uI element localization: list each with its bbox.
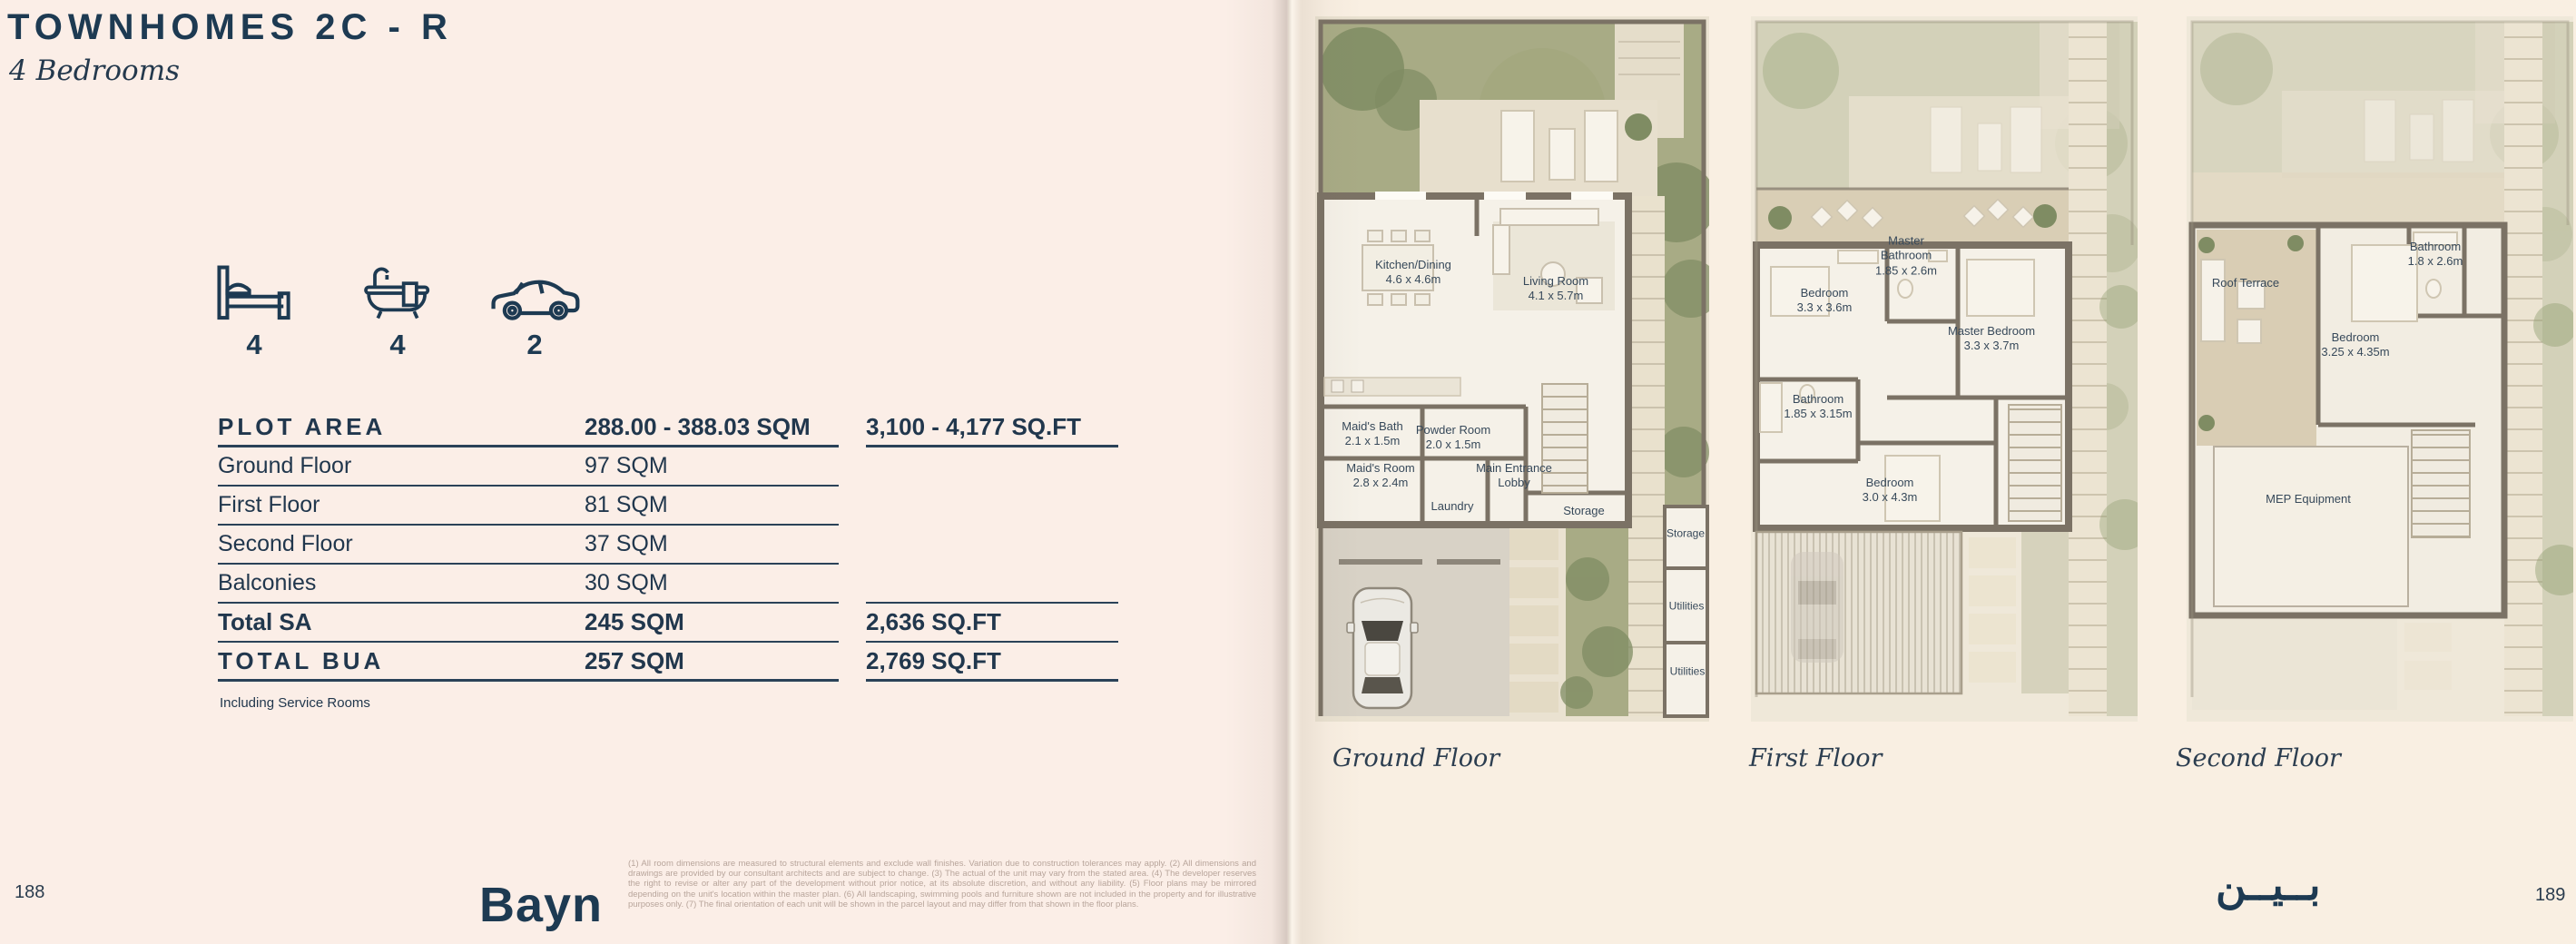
row-label: Second Floor [218, 531, 585, 557]
row-sqm: 257 SQM [585, 647, 684, 675]
stepping-stones [1509, 529, 1558, 713]
row-sqm: 245 SQM [585, 608, 684, 636]
row-sqm: 97 SQM [585, 453, 668, 479]
second-floor-plan: Roof Terrace Bathroom1.8 x 2.6m Bedroom3… [2187, 16, 2573, 722]
plan-caption: Second Floor [2176, 744, 2341, 772]
left-page: TOWNHOMES 2C - R 4 Bedrooms 4 4 [0, 0, 1288, 944]
room-label: Bedroom3.25 x 4.35m [2306, 330, 2405, 360]
row-label: First Floor [218, 492, 585, 518]
row-sqm: 81 SQM [585, 492, 668, 518]
table-row: Second Floor37 SQM [218, 526, 1118, 565]
bedrooms-count: 4 [215, 329, 293, 361]
room-label: Bedroom3.0 x 4.3m [1846, 476, 1933, 506]
first-floor-plan-drawing [1751, 16, 2138, 722]
page-subtitle: 4 Bedrooms [9, 54, 180, 87]
bed-icon [215, 263, 293, 327]
table-row: Balconies30 SQM [218, 565, 1118, 604]
row-sqm: 37 SQM [585, 531, 668, 557]
room-label: MEP Equipment [2249, 492, 2367, 506]
brand-wordmark-arabic: بــيــن [2216, 860, 2321, 910]
room-label: Storage [1540, 504, 1627, 518]
room-label: Storage [1658, 527, 1713, 541]
room-label: Utilities [1660, 665, 1715, 679]
row-label: PLOT AREA [218, 413, 585, 441]
room-label: Master Bedroom3.3 x 3.7m [1932, 324, 2050, 354]
first-floor-plan: Master Bathroom1.85 x 2.6m Bedroom3.3 x … [1751, 16, 2138, 722]
page-number-left: 188 [15, 882, 44, 903]
pergola-carport [1756, 532, 1961, 693]
mep-area [2214, 447, 2408, 606]
brochure-spread: TOWNHOMES 2C - R 4 Bedrooms 4 4 [0, 0, 2576, 944]
side-walkway [2069, 22, 2107, 716]
parking-count: 2 [487, 329, 583, 361]
side-walkway [2504, 22, 2542, 716]
area-table: PLOT AREA288.00 - 388.03 SQM 3,100 - 4,1… [218, 408, 1118, 682]
row-sqm: 288.00 - 388.03 SQM [585, 413, 811, 441]
patio [1420, 100, 1657, 196]
ground-floor-plan-drawing [1315, 16, 1709, 722]
bathtub-icon [361, 260, 434, 327]
room-label: Laundry [1409, 499, 1496, 514]
side-walkway [1628, 196, 1665, 716]
room-label: Bathroom1.85 x 3.15m [1773, 392, 1863, 422]
room-label: Maid's Room2.8 x 2.4m [1340, 461, 1421, 491]
page-number-right: 189 [2535, 885, 2565, 906]
plan-caption: Ground Floor [1332, 744, 1499, 772]
driveway [1321, 525, 1509, 716]
service-rooms-note: Including Service Rooms [220, 695, 370, 711]
row-label: TOTAL BUA [218, 647, 585, 675]
row-sqm: 30 SQM [585, 570, 668, 596]
row-sqft: 3,100 - 4,177 SQ.FT [866, 413, 1081, 441]
row-sqft: 2,636 SQ.FT [866, 608, 1001, 636]
room-label: Roof Terrace [2200, 276, 2291, 290]
table-row: Ground Floor97 SQM [218, 447, 1118, 487]
ground-floor-plan: Kitchen/Dining4.6 x 4.6m Living Room4.1 … [1315, 16, 1709, 722]
room-label: Bathroom1.8 x 2.6m [2394, 240, 2476, 270]
table-row: PLOT AREA288.00 - 388.03 SQM 3,100 - 4,1… [218, 408, 1118, 447]
room-label: Maid's Bath2.1 x 1.5m [1336, 419, 1409, 449]
car-icon [487, 269, 583, 325]
room-label: Bedroom3.3 x 3.6m [1781, 286, 1868, 316]
right-page: Kitchen/Dining4.6 x 4.6m Living Room4.1 … [1288, 0, 2576, 944]
bathrooms-count: 4 [361, 329, 434, 361]
row-label: Balconies [218, 570, 585, 596]
table-row: Total SA245 SQM 2,636 SQ.FT [218, 604, 1118, 643]
table-row: First Floor81 SQM [218, 487, 1118, 526]
staircase [2412, 430, 2470, 537]
room-label: Kitchen/Dining4.6 x 4.6m [1370, 258, 1457, 288]
row-label: Total SA [218, 608, 585, 636]
row-label: Ground Floor [218, 453, 585, 479]
table-row: TOTAL BUA257 SQM 2,769 SQ.FT [218, 643, 1118, 682]
room-label: Master Bathroom1.85 x 2.6m [1870, 234, 1942, 279]
room-label: Living Room4.1 x 5.7m [1512, 274, 1599, 304]
room-label: Utilities [1659, 600, 1714, 614]
legal-disclaimer: (1) All room dimensions are measured to … [628, 859, 1256, 910]
second-floor-plan-drawing [2187, 16, 2573, 722]
row-sqft: 2,769 SQ.FT [866, 647, 1001, 675]
staircase [2009, 405, 2061, 521]
page-title: TOWNHOMES 2C - R [7, 7, 453, 48]
room-label: Main Entrance Lobby [1467, 461, 1561, 491]
car-top-view [1347, 588, 1418, 708]
room-label: Powder Room2.0 x 1.5m [1411, 423, 1495, 453]
brand-wordmark: Bayn [479, 877, 603, 933]
plan-caption: First Floor [1749, 744, 1882, 772]
